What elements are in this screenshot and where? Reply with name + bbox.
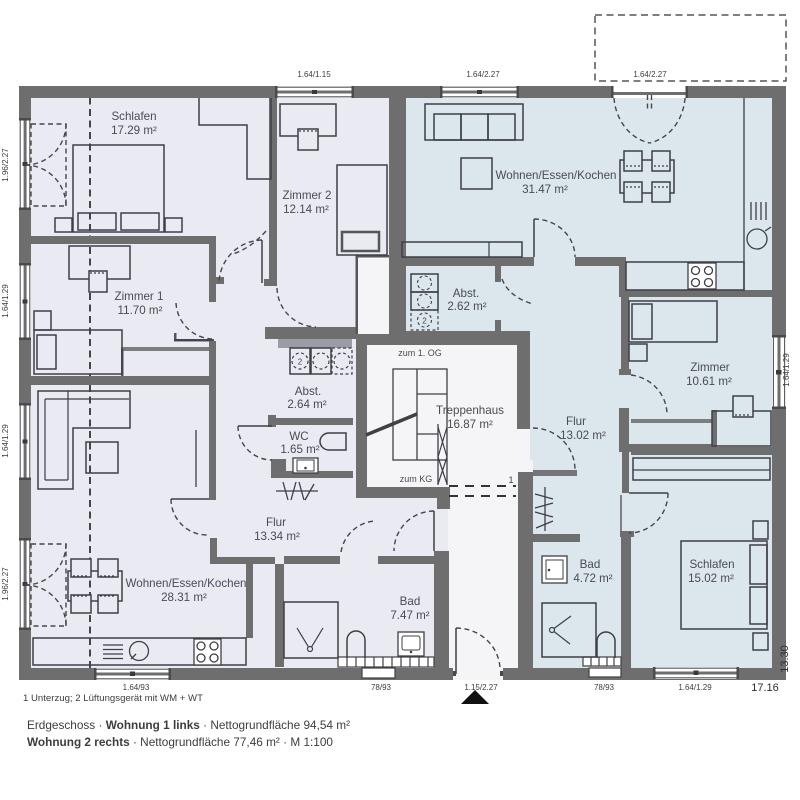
svg-text:zum 1. OG: zum 1. OG (398, 348, 442, 358)
svg-text:Flur: Flur (266, 516, 286, 529)
svg-text:zum KG: zum KG (400, 474, 433, 484)
svg-text:10.61 m²: 10.61 m² (686, 375, 732, 388)
svg-text:Flur: Flur (566, 415, 586, 428)
svg-text:Erdgeschoss · Wohnung 1 links: Erdgeschoss · Wohnung 1 links · Nettogru… (27, 718, 350, 732)
svg-text:Schlafen: Schlafen (689, 558, 734, 571)
svg-text:Zimmer: Zimmer (690, 361, 729, 374)
svg-text:2: 2 (298, 358, 303, 367)
svg-text:1 Unterzug; 2 Lüftungsgerät mi: 1 Unterzug; 2 Lüftungsgerät mit WM + WT (23, 693, 203, 704)
svg-text:1.64/1.29: 1.64/1.29 (782, 353, 791, 387)
svg-text:1.64/1.15: 1.64/1.15 (297, 70, 331, 79)
svg-text:17.29 m²: 17.29 m² (111, 124, 157, 137)
svg-text:1.64/2.27: 1.64/2.27 (633, 70, 667, 79)
svg-text:17.16: 17.16 (751, 682, 779, 694)
svg-text:Wohnung 2 rechts · Nettogrundf: Wohnung 2 rechts · Nettogrundfläche 77,4… (27, 735, 333, 749)
svg-text:WC: WC (289, 430, 308, 443)
svg-text:1: 1 (508, 475, 513, 485)
svg-text:Wohnen/Essen/Kochen: Wohnen/Essen/Kochen (126, 577, 247, 590)
svg-text:Treppenhaus: Treppenhaus (436, 404, 504, 417)
svg-text:7.47 m²: 7.47 m² (390, 609, 429, 622)
svg-text:4.72 m²: 4.72 m² (573, 572, 612, 585)
svg-text:2.62 m²: 2.62 m² (447, 300, 486, 313)
svg-text:Bad: Bad (400, 595, 421, 608)
svg-text:2: 2 (422, 317, 427, 326)
svg-text:1.65 m²: 1.65 m² (280, 443, 319, 456)
svg-text:Abst.: Abst. (453, 287, 479, 300)
svg-text:78/93: 78/93 (594, 683, 615, 692)
svg-text:1.15/2.27: 1.15/2.27 (464, 683, 498, 692)
svg-text:16.87 m²: 16.87 m² (447, 418, 493, 431)
svg-text:1.64/93: 1.64/93 (123, 683, 150, 692)
svg-text:13.34 m²: 13.34 m² (254, 530, 300, 543)
svg-text:78/93: 78/93 (371, 683, 392, 692)
svg-text:28.31 m²: 28.31 m² (161, 591, 207, 604)
svg-text:1.64/1.29: 1.64/1.29 (1, 424, 10, 458)
svg-text:Bad: Bad (580, 558, 601, 571)
svg-text:1.96/2.27: 1.96/2.27 (1, 567, 10, 601)
svg-text:1.64/1.29: 1.64/1.29 (678, 683, 712, 692)
svg-text:13.02 m²: 13.02 m² (560, 429, 606, 442)
svg-text:Schlafen: Schlafen (111, 110, 156, 123)
svg-text:1.64/2.27: 1.64/2.27 (466, 70, 500, 79)
svg-text:1.96/2.27: 1.96/2.27 (1, 148, 10, 182)
svg-text:1.64/1.29: 1.64/1.29 (1, 284, 10, 318)
svg-text:Zimmer 2: Zimmer 2 (283, 189, 332, 202)
svg-text:11.70 m²: 11.70 m² (118, 304, 163, 317)
svg-text:2.64 m²: 2.64 m² (287, 398, 326, 411)
svg-text:12.14 m²: 12.14 m² (283, 203, 329, 216)
svg-text:13.30: 13.30 (779, 645, 791, 673)
svg-text:31.47 m²: 31.47 m² (522, 183, 568, 196)
svg-text:Wohnen/Essen/Kochen: Wohnen/Essen/Kochen (496, 169, 617, 182)
svg-text:15.02 m²: 15.02 m² (688, 572, 734, 585)
svg-text:Zimmer 1: Zimmer 1 (115, 290, 164, 303)
svg-text:Abst.: Abst. (295, 385, 321, 398)
